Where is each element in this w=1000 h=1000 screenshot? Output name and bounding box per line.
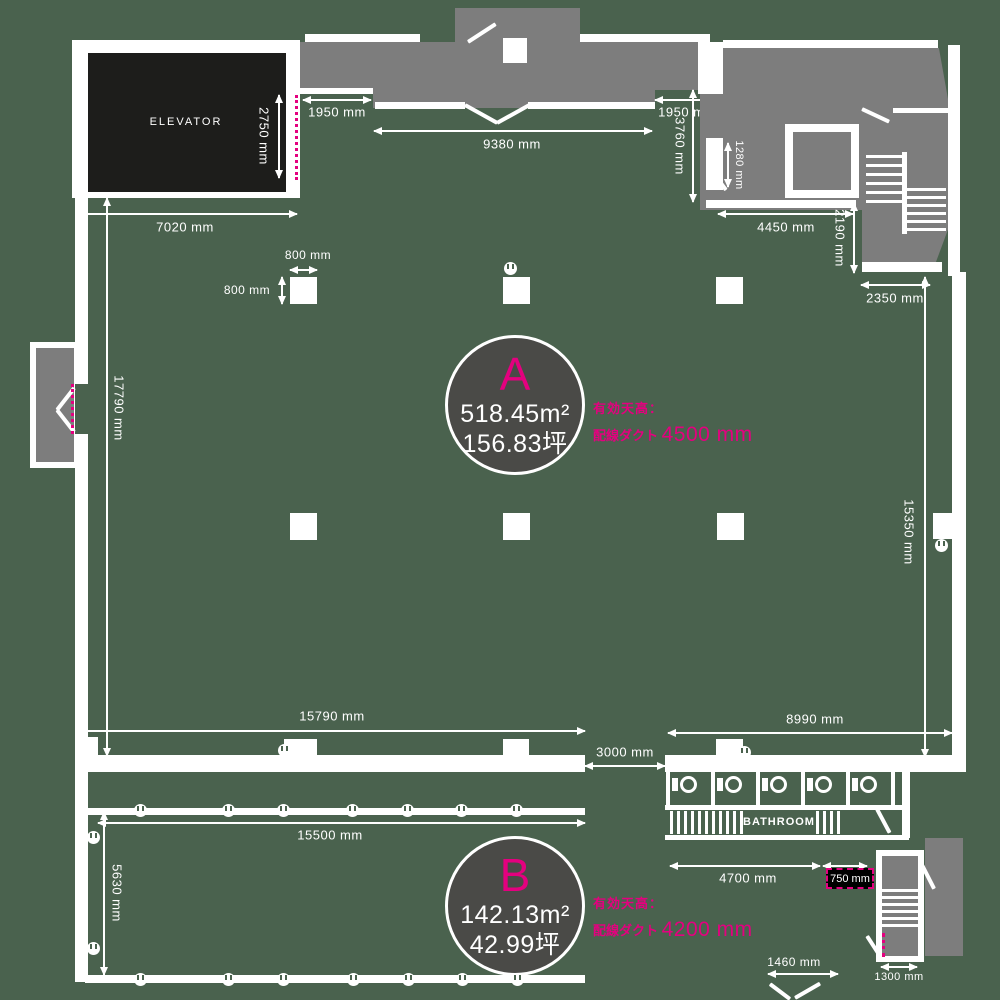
dim-label-a-right-depth: 15350 mm (902, 499, 917, 564)
zone-b-note-title: 有効天高： (593, 893, 753, 912)
bathroom-door-swing (875, 808, 891, 834)
dim-label-entry-left: 1950 mm (308, 105, 366, 120)
outlet-icon (510, 804, 523, 817)
dim-label-elevator-width: 7020 mm (156, 220, 214, 235)
bathroom-hatch-line (823, 811, 826, 834)
outlet-icon (347, 973, 360, 986)
stair-tread (882, 903, 918, 906)
dim-line-b-depth (103, 812, 105, 975)
corridor (300, 42, 700, 90)
dim-line-b-entry (768, 973, 838, 975)
toilet-icon (717, 776, 743, 793)
stair-tread (882, 917, 918, 920)
outlet-icon (277, 973, 290, 986)
core-wall-right (948, 45, 960, 276)
corridor-wall-bottom-right (528, 102, 655, 109)
dim-label-b-width: 15500 mm (297, 828, 362, 843)
stair-tread (882, 889, 918, 892)
stair-tread (906, 220, 946, 223)
dim-line-elevator-depth (278, 95, 280, 178)
stair-south (882, 856, 918, 956)
dim-line-service-elevator (823, 865, 867, 867)
stair-tread (906, 188, 946, 191)
corridor-wall-top-left (305, 34, 420, 42)
zone-b-note: 有効天高： 配線ダクト 4200 mm (593, 893, 753, 942)
dim-line-a-right-depth (924, 277, 926, 757)
bathroom-hatch-line (719, 811, 722, 834)
corridor-wall-top-right (580, 34, 710, 42)
dim-label-b-depth: 5630 mm (110, 864, 125, 922)
outlet-icon (87, 831, 100, 844)
toilet-icon (852, 776, 878, 793)
toilet-icon (807, 776, 833, 793)
bathroom-hatch-line (837, 811, 840, 834)
bathroom-partition (711, 770, 715, 806)
wall-bottom-a-right (665, 755, 955, 772)
dim-line-right-depth (692, 90, 694, 202)
bathroom-hatch-line (691, 811, 694, 834)
outlet-icon (511, 973, 524, 986)
zone-b-area-m2: 142.13m² (460, 901, 570, 931)
wall-left (75, 195, 88, 982)
dim-line-corridor-width (374, 130, 652, 132)
corridor-door-opening (503, 38, 527, 63)
core-door-gap-left (698, 42, 723, 94)
core-wall-top (723, 40, 938, 48)
zone-a-area-m2: 518.45m² (460, 400, 570, 430)
dim-label-a-left-depth: 17790 mm (112, 375, 127, 440)
stair-tread (906, 196, 946, 199)
zone-a-id: A (500, 351, 531, 397)
zone-a-note-line: 配線ダクト 4500 mm (593, 423, 753, 447)
balcony-door-opening (75, 384, 88, 434)
core-corner-chamfer (935, 48, 948, 150)
dim-line-bath-width (670, 865, 820, 867)
bathroom-hatch-line (830, 811, 833, 834)
bathroom-wall-mid (665, 805, 907, 810)
dim-line-pillar-width (290, 269, 317, 271)
outlet-icon (401, 804, 414, 817)
toilet-icon (762, 776, 788, 793)
pillar (716, 277, 743, 304)
zone-a-area-tsubo: 156.83坪 (463, 430, 568, 460)
outlet-icon (504, 262, 517, 275)
wall-right (952, 272, 966, 772)
outlet-icon (402, 973, 415, 986)
stair-tread (906, 228, 946, 231)
wall-bottom-b (85, 975, 585, 983)
outlet-icon (738, 746, 751, 759)
stair-tread (866, 173, 903, 176)
dim-line-a-width (80, 730, 585, 732)
wall-bottom-a-left (85, 755, 585, 772)
outlet-icon (134, 804, 147, 817)
dim-line-shaft-door (727, 143, 729, 187)
outlet-icon (134, 973, 147, 986)
outlet-icon (935, 539, 948, 552)
dim-label-stair-east: 2350 mm (866, 291, 924, 306)
dim-line-pillar-depth (281, 277, 283, 304)
dim-line-stair-east (861, 284, 930, 286)
pillar (717, 513, 744, 540)
pillar (290, 277, 317, 304)
elevator-door-dashed-line (295, 95, 298, 180)
dim-line-a-right-width (668, 732, 952, 734)
bathroom-label: BATHROOM (743, 816, 815, 828)
floor-plan: ELEVATOR 2750 mm 7020 mm 1950 mm 9380 mm… (0, 0, 1000, 1000)
dim-line-entry-left (303, 99, 371, 101)
outlet-icon (277, 804, 290, 817)
service-elevator-badge: 750 mm (826, 868, 874, 889)
zone-a-note: 有効天高： 配線ダクト 4500 mm (593, 398, 753, 447)
bathroom-hatch-line (705, 811, 708, 834)
dim-line-b-width (98, 822, 585, 824)
bathroom-hatch-line (733, 811, 736, 834)
dim-line-a-left-depth (106, 198, 108, 756)
outlet-icon (455, 804, 468, 817)
zone-b-badge: B 142.13m² 42.99坪 (445, 836, 585, 976)
bathroom-partition (846, 770, 850, 806)
zone-b-area-tsubo: 42.99坪 (470, 931, 561, 961)
pillar (290, 513, 317, 540)
balcony-door-dashed-line (71, 384, 74, 434)
stair-tread (882, 924, 918, 927)
bathroom-partition (756, 770, 760, 806)
stair-tread (906, 204, 946, 207)
dim-label-a-right-width: 8990 mm (786, 712, 844, 727)
outlet-icon (222, 973, 235, 986)
bathroom-wall-right (902, 770, 910, 838)
dim-label-b-entry: 1460 mm (767, 955, 821, 969)
pillar (503, 739, 529, 757)
bathroom-partition (666, 770, 670, 806)
dim-label-stair-width: 2190 mm (833, 209, 848, 267)
dim-label-topright-width: 4450 mm (757, 220, 815, 235)
bathroom-hatch-line (698, 811, 701, 834)
outlet-icon (222, 804, 235, 817)
zone-b-id: B (500, 852, 531, 898)
dim-label-right-depth: 3760 mm (673, 117, 688, 175)
balcony (36, 348, 74, 462)
bathroom-hatch-line (684, 811, 687, 834)
zone-a-note-title: 有効天高： (593, 398, 753, 417)
corridor-wall-bottom-left (300, 88, 373, 94)
bathroom-partition (801, 770, 805, 806)
stair-tread (866, 182, 903, 185)
pillar (503, 277, 530, 304)
zone-a-badge: A 518.45m² 156.83坪 (445, 335, 585, 475)
bathroom-hatch-line (677, 811, 680, 834)
toilet-icon (672, 776, 698, 793)
bathroom-partition (891, 770, 895, 806)
stair-south-block (925, 838, 963, 956)
b-entry-chevron (769, 982, 791, 1000)
stair-tread (906, 212, 946, 215)
bathroom-hatch-line (816, 811, 819, 834)
dim-label-passage: 3000 mm (596, 745, 654, 760)
bathroom-wall-bottom (665, 835, 909, 840)
stair-tread (882, 896, 918, 899)
dim-label-shaft-door: 1280 mm (733, 140, 745, 189)
outlet-icon (346, 804, 359, 817)
bathroom-hatch-line (712, 811, 715, 834)
stair-door-gap (893, 108, 948, 113)
bathroom-hatch-line (740, 811, 743, 834)
outlet-icon (456, 973, 469, 986)
stair-tread (866, 155, 903, 158)
dim-line-passage (585, 765, 665, 767)
pillar (503, 513, 530, 540)
stair-tread (866, 191, 903, 194)
outlet-icon (87, 942, 100, 955)
dim-line-elevator-width (80, 213, 297, 215)
dim-label-pillar-depth: 800 mm (224, 283, 270, 297)
outlet-icon (278, 744, 291, 757)
core-wall-south (706, 200, 856, 208)
bathroom-hatch-line (726, 811, 729, 834)
dim-line-stair-south (881, 966, 917, 968)
dim-label-stair-south: 1300 mm (874, 971, 923, 983)
dim-label-elevator-depth: 2750 mm (257, 107, 272, 165)
shaft-inner (793, 132, 851, 190)
zone-b-note-line: 配線ダクト 4200 mm (593, 918, 753, 942)
elevator-label: ELEVATOR (150, 116, 223, 128)
dim-label-a-width: 15790 mm (299, 709, 364, 724)
dim-label-corridor-width: 9380 mm (483, 137, 541, 152)
dim-label-pillar-width: 800 mm (285, 248, 331, 262)
stair-tread (882, 910, 918, 913)
dim-label-bath-width: 4700 mm (719, 871, 777, 886)
core-wall-bottom (862, 262, 942, 272)
stair-tread (866, 200, 903, 203)
pillar (85, 737, 98, 757)
stair-door-dashed-line (882, 933, 885, 957)
dim-line-stair-width (853, 203, 855, 273)
stair-tread (866, 164, 903, 167)
pillar (933, 513, 953, 539)
corridor-wall-bottom-mid (375, 102, 465, 109)
b-entry-chevron (794, 982, 821, 1000)
bathroom-hatch-line (670, 811, 673, 834)
